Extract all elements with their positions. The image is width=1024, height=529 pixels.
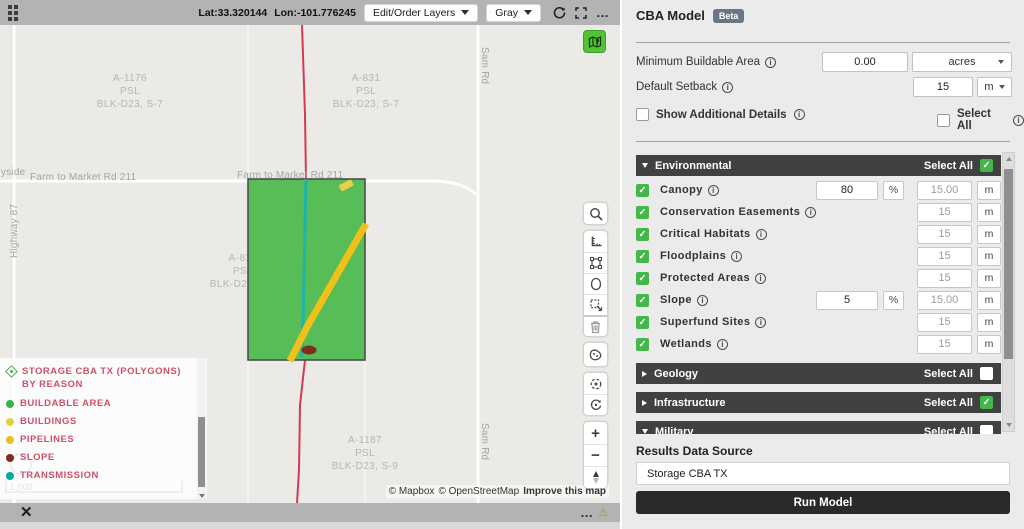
chevron-down-icon — [999, 85, 1005, 89]
scroll-down-arrow-icon — [199, 494, 205, 498]
legend-item: TRANSMISSION — [6, 470, 193, 481]
meter-unit: m — [977, 313, 1001, 332]
rectangle-draw-icon — [589, 256, 603, 270]
more-options-icon[interactable]: … — [580, 509, 594, 517]
canopy-setback-input[interactable] — [917, 181, 972, 200]
meter-unit: m — [977, 181, 1001, 200]
road-label-fm211: Farm to Market Rd 211 — [30, 172, 137, 183]
legend-dot — [6, 472, 14, 480]
min-buildable-input[interactable] — [822, 52, 908, 72]
chevron-down-icon — [998, 60, 1004, 64]
panel-title: CBA Model — [636, 8, 705, 23]
info-icon[interactable] — [794, 109, 805, 120]
results-data-source-input[interactable] — [636, 462, 1010, 485]
collapse-arrow-icon — [642, 400, 647, 406]
ellipse-draw-icon — [589, 277, 603, 291]
road-label-sam-rd: Sam Rd — [479, 423, 490, 460]
row-checkbox[interactable] — [636, 228, 649, 241]
basemap-select-button[interactable]: Gray — [486, 4, 541, 22]
zoom-search-button[interactable] — [584, 203, 607, 224]
svg-text:PSL: PSL — [120, 86, 140, 97]
min-buildable-label: Minimum Buildable Area — [636, 56, 760, 68]
section-header-geology[interactable]: Geology Select All — [636, 363, 1001, 384]
slope-value-input[interactable] — [816, 291, 878, 310]
ruler-icon — [589, 235, 603, 249]
model-row-canopy: Canopy % m — [636, 179, 1001, 201]
svg-text:A-831: A-831 — [352, 73, 381, 84]
row-checkbox[interactable] — [636, 272, 649, 285]
scroll-up-arrow-icon — [1006, 157, 1012, 161]
zoom-in-button[interactable]: + — [584, 422, 607, 444]
dashed-circle-target-icon — [589, 377, 603, 391]
expand-arrow-icon — [642, 163, 648, 168]
row-checkbox[interactable] — [636, 250, 649, 263]
beta-badge: Beta — [713, 9, 745, 23]
row-checkbox[interactable] — [636, 184, 649, 197]
latitude-value: Lat:33.320144 — [198, 7, 267, 19]
info-icon[interactable] — [717, 339, 728, 350]
info-icon[interactable] — [697, 295, 708, 306]
meter-unit: m — [977, 225, 1001, 244]
bottom-strip — [0, 522, 620, 529]
legend-item: SLOPE — [6, 452, 193, 463]
model-row-floodplains: Floodplains m — [636, 245, 1001, 267]
lasso-blob-icon — [588, 348, 603, 362]
road-label-highway-87: Highway 87 — [9, 204, 20, 258]
warning-icon[interactable]: ⚠ — [598, 506, 608, 519]
section-header-environmental[interactable]: Environmental Select All — [636, 155, 1001, 176]
trash-icon — [589, 320, 602, 334]
map-pin-button[interactable] — [583, 30, 606, 53]
default-setback-label: Default Setback — [636, 81, 717, 93]
row-checkbox[interactable] — [636, 294, 649, 307]
legend-scrollbar[interactable] — [197, 358, 206, 499]
expand-arrow-icon — [642, 429, 648, 434]
compass-needle-icon — [593, 471, 599, 484]
fullscreen-icon[interactable] — [575, 7, 587, 19]
coordinates-readout: Lat:33.320144 Lon:-101.776245 — [198, 7, 356, 19]
sections-scrollbar[interactable] — [1002, 152, 1015, 432]
road-label-fm211: Farm to Market Rd 211 — [237, 170, 344, 181]
run-model-button[interactable]: Run Model — [636, 491, 1010, 514]
parcel-label-a831: A-831 PSL BLK-D23, S-7 — [333, 73, 400, 110]
model-row-critical-habitats: Critical Habitats m — [636, 223, 1001, 245]
info-icon[interactable] — [805, 207, 816, 218]
model-row-superfund-sites: Superfund Sites m — [636, 311, 1001, 333]
divider — [636, 42, 1010, 43]
legend-dot — [6, 418, 14, 426]
folded-map-pin-icon — [588, 35, 602, 49]
percent-unit: % — [883, 291, 904, 310]
infrastructure-select-all-checkbox[interactable] — [980, 396, 993, 409]
meter-unit: m — [977, 247, 1001, 266]
military-select-all-checkbox[interactable] — [980, 425, 993, 434]
percent-unit: % — [883, 181, 904, 200]
svg-text:PSL: PSL — [356, 86, 376, 97]
setback-input[interactable] — [917, 313, 972, 332]
legend-item: BUILDINGS — [6, 416, 193, 427]
svg-text:A-1187: A-1187 — [348, 435, 382, 446]
rotate-shape-button[interactable] — [584, 394, 607, 415]
move-vertex-icon — [589, 298, 603, 312]
svg-text:PSL: PSL — [355, 448, 375, 459]
select-all-top-checkbox[interactable] — [937, 114, 950, 127]
setback-input[interactable] — [917, 225, 972, 244]
magnifier-icon — [589, 207, 603, 221]
minus-icon: − — [591, 448, 600, 463]
map-legend: STORAGE CBA TX (POLYGONS) BY REASON BUIL… — [0, 358, 207, 499]
app-window: Lat:33.320144 Lon:-101.776245 Edit/Order… — [0, 0, 1024, 529]
row-checkbox[interactable] — [636, 316, 649, 329]
mapbox-link[interactable]: © Mapbox — [389, 486, 435, 497]
plus-icon: + — [591, 426, 600, 441]
results-data-source-label: Results Data Source — [636, 444, 753, 458]
osm-link[interactable]: © OpenStreetMap — [438, 486, 519, 497]
scrollbar-thumb[interactable] — [198, 417, 205, 487]
model-row-wetlands: Wetlands m — [636, 333, 1001, 355]
model-row-slope: Slope % m — [636, 289, 1001, 311]
meter-unit: m — [977, 203, 1001, 222]
divider — [636, 141, 1010, 142]
refresh-icon[interactable] — [553, 6, 566, 19]
compass-reset-button[interactable] — [584, 466, 607, 488]
slope-blob — [302, 346, 317, 355]
info-icon[interactable] — [765, 57, 776, 68]
layer-diamond-icon — [5, 365, 18, 378]
min-buildable-unit-select[interactable]: acres — [912, 52, 1012, 72]
cba-model-panel: CBA Model Beta Minimum Buildable Area ac… — [620, 0, 1024, 529]
info-icon[interactable] — [722, 82, 733, 93]
rotate-arc-icon — [589, 398, 603, 412]
scroll-down-arrow-icon — [1006, 423, 1012, 427]
draw-ellipse-button[interactable] — [584, 273, 607, 294]
row-checkbox[interactable] — [636, 206, 649, 219]
map-attribution: © Mapbox © OpenStreetMap Improve this ma… — [386, 485, 609, 498]
legend-item: BUILDABLE AREA — [6, 398, 193, 409]
info-icon[interactable] — [755, 317, 766, 328]
zoom-out-button[interactable]: − — [584, 444, 607, 466]
svg-text:BLK-D23, S-7: BLK-D23, S-7 — [333, 99, 400, 110]
map-toolbar: Lat:33.320144 Lon:-101.776245 Edit/Order… — [0, 0, 620, 25]
section-header-infrastructure[interactable]: Infrastructure Select All — [636, 392, 1001, 413]
geology-select-all-checkbox[interactable] — [980, 367, 993, 380]
delete-shape-button[interactable] — [584, 315, 607, 336]
info-icon[interactable] — [708, 185, 719, 196]
info-icon[interactable] — [756, 229, 767, 240]
draw-rectangle-button[interactable] — [584, 252, 607, 273]
environmental-select-all-checkbox[interactable] — [980, 159, 993, 172]
snap-target-button[interactable] — [584, 373, 607, 394]
map-canvas[interactable]: A-830 PSL BLK-D23, S-8 A-1176 — [0, 25, 620, 503]
setback-input[interactable] — [917, 269, 972, 288]
legend-title: STORAGE CBA TX (POLYGONS) BY REASON — [22, 365, 193, 391]
collapse-arrow-icon — [642, 371, 647, 377]
scrollbar-thumb[interactable] — [1004, 169, 1013, 359]
parcel-label-a1187: A-1187 PSL BLK-D23, S-9 — [332, 435, 399, 472]
model-row-protected-areas: Protected Areas m — [636, 267, 1001, 289]
bottom-bar: ✕ … ⚠ — [0, 503, 620, 522]
lasso-select-button[interactable] — [584, 343, 607, 366]
legend-item: PIPELINES — [6, 434, 193, 445]
slope-setback-input[interactable] — [917, 291, 972, 310]
legend-dot — [6, 454, 14, 462]
edit-order-layers-button[interactable]: Edit/Order Layers — [364, 4, 478, 22]
chevron-down-icon — [524, 10, 532, 15]
info-icon[interactable] — [755, 273, 766, 284]
meter-unit: m — [977, 269, 1001, 288]
chevron-down-icon — [461, 10, 469, 15]
meter-unit: m — [977, 291, 1001, 310]
road-fm-211 — [0, 181, 478, 196]
more-options-icon[interactable]: … — [596, 8, 610, 18]
select-all-label: Select All — [957, 108, 1006, 132]
road-label-partial: yside — [1, 167, 26, 178]
show-additional-details-checkbox[interactable] — [636, 108, 649, 121]
meter-unit: m — [977, 335, 1001, 354]
parcel-label-a1176: A-1176 PSL BLK-D23, S-7 — [97, 73, 164, 110]
setback-input[interactable] — [917, 247, 972, 266]
road-label-sam-rd: Sam Rd — [479, 47, 490, 84]
drag-handle-icon[interactable] — [8, 5, 18, 21]
svg-text:BLK-D23, S-9: BLK-D23, S-9 — [332, 461, 399, 472]
info-icon[interactable] — [731, 251, 742, 262]
row-checkbox[interactable] — [636, 338, 649, 351]
canopy-value-input[interactable] — [816, 181, 878, 200]
measure-button[interactable] — [584, 231, 607, 252]
section-header-military[interactable]: Military Select All — [636, 421, 1001, 434]
setback-input[interactable] — [917, 335, 972, 354]
show-additional-details-label: Show Additional Details — [656, 109, 787, 121]
model-row-conservation-easements: Conservation Easements m — [636, 201, 1001, 223]
svg-text:BLK-D23, S-7: BLK-D23, S-7 — [97, 99, 164, 110]
longitude-value: Lon:-101.776245 — [274, 7, 356, 19]
close-icon[interactable]: ✕ — [20, 505, 33, 520]
svg-text:A-1176: A-1176 — [113, 73, 147, 84]
info-icon[interactable] — [1013, 115, 1024, 126]
map-region: Lat:33.320144 Lon:-101.776245 Edit/Order… — [0, 0, 620, 529]
default-setback-unit-select[interactable]: m — [977, 77, 1012, 97]
edit-shape-button[interactable] — [584, 294, 607, 315]
legend-dot — [6, 400, 14, 408]
setback-input[interactable] — [917, 203, 972, 222]
default-setback-input[interactable] — [913, 77, 973, 97]
legend-dot — [6, 436, 14, 444]
sections-scroll-area: Environmental Select All Canopy % m Cons… — [622, 150, 1024, 434]
